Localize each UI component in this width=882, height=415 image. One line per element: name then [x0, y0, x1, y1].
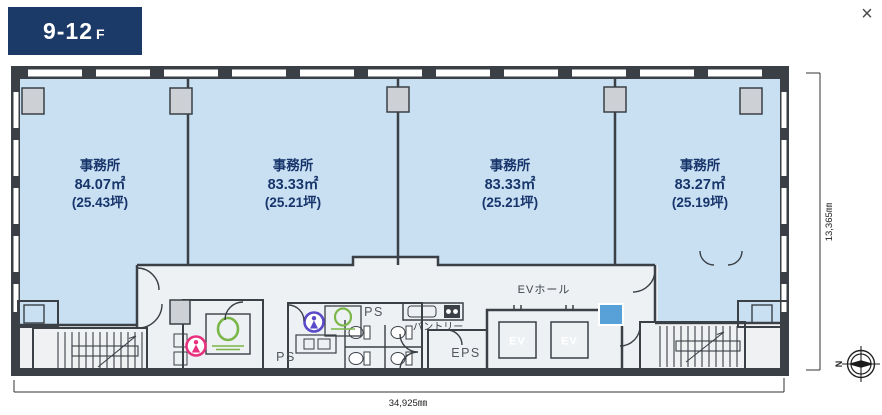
pantry-label: パントリー [413, 321, 464, 333]
dimension-right: 13,365㎜ [806, 73, 835, 370]
office-area-tsubo: (25.43坪) [72, 195, 128, 210]
office-name: 事務所 [680, 157, 721, 173]
ev1-label: EV [509, 336, 526, 348]
eps-label: EPS [451, 346, 481, 360]
office-area-sqm: 84.07㎡ [75, 175, 126, 193]
ev2-label: EV [561, 336, 578, 348]
core-bump [353, 257, 438, 267]
shaft-box [599, 304, 623, 325]
floor-plan: EV EV 事務所 84 [12, 67, 788, 375]
office-area-sqm: 83.33㎡ [485, 175, 536, 193]
compass: N [834, 346, 880, 382]
floor-badge-label: 9-12 [43, 18, 93, 44]
dimension-right-label: 13,365㎜ [824, 202, 835, 241]
office-area-tsubo: (25.21坪) [265, 195, 321, 210]
office-name: 事務所 [490, 157, 531, 173]
floor-badge: 9-12 F [8, 7, 142, 55]
office-unit-1: 事務所 84.07㎡ (25.43坪) [72, 157, 128, 210]
office-unit-2: 事務所 83.33㎡ (25.21坪) [265, 157, 321, 210]
female-icon [187, 337, 206, 356]
close-icon[interactable]: × [861, 3, 873, 25]
dimension-bottom: 34,925㎜ [14, 378, 784, 409]
top-windows [28, 70, 762, 77]
office1-extension [20, 265, 137, 325]
floorplan-viewer: 9-12 F × [0, 0, 882, 415]
ps-label-1: PS [276, 350, 296, 364]
office-area-tsubo: (25.21坪) [482, 195, 538, 210]
office-area-tsubo: (25.19坪) [672, 195, 728, 210]
floor-plan-svg: 9-12 F × [0, 0, 882, 415]
office-unit-3: 事務所 83.33㎡ (25.21坪) [482, 157, 538, 210]
floor-badge-suffix: F [96, 26, 105, 42]
male-icon [305, 313, 324, 332]
office-unit-4: 事務所 83.27㎡ (25.19坪) [672, 157, 728, 210]
north-label: N [834, 361, 844, 368]
office-name: 事務所 [80, 157, 121, 173]
office-name: 事務所 [273, 157, 314, 173]
ev-hall-label: EVホール [518, 283, 571, 296]
office4-extension [655, 265, 780, 323]
ps-label-2: PS [364, 305, 384, 319]
office-area-sqm: 83.27㎡ [675, 175, 726, 193]
dimension-bottom-label: 34,925㎜ [389, 398, 428, 409]
office-area-sqm: 83.33㎡ [268, 175, 319, 193]
